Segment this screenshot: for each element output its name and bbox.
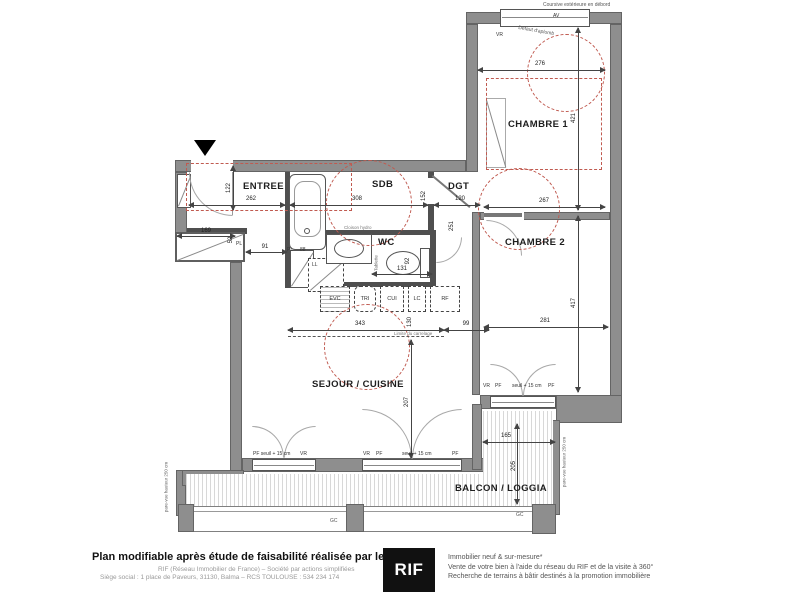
dim-281: 281 <box>540 318 550 324</box>
note-limite-carrelage: Limite du carrelage <box>394 331 432 336</box>
appliance-rf-label: RF <box>441 296 448 302</box>
window-av-chambre1 <box>500 9 590 27</box>
footer-line1: RIF (Réseau Immobilier de France) – Soci… <box>158 566 355 573</box>
wall-chambre2-left <box>472 212 480 395</box>
room-label-sdb: SDB <box>372 179 393 190</box>
note-tablette: Tablette <box>374 255 379 271</box>
dimline-131 <box>372 274 432 275</box>
footer-right-line1: Immobilier neuf & sur-mesure* <box>448 553 653 563</box>
floor-plan: EVC TRI CUI LC RF 276 262 308 120 169 91… <box>0 0 800 600</box>
railing-post-left <box>178 504 194 532</box>
dim-262: 262 <box>246 196 256 202</box>
bathtub-drain <box>304 228 310 234</box>
dimline-207 <box>411 340 412 458</box>
wall-balcony-right <box>552 420 560 515</box>
dim-308: 308 <box>352 196 362 202</box>
note-cloison-hydro: Cloison hydro <box>344 225 372 230</box>
wall-chambre1-left <box>466 24 478 172</box>
note-coursive: Coursive extérieure en débord <box>543 2 610 8</box>
wall-sejour-left <box>230 262 242 472</box>
dim-207: 207 <box>404 397 410 407</box>
dim-52: 52 <box>228 237 234 244</box>
dimline-91 <box>246 252 287 253</box>
wall-corner-block <box>556 395 622 423</box>
dim-417: 417 <box>571 298 577 308</box>
balcony-floor-strip <box>186 474 482 506</box>
dim-91: 91 <box>262 244 269 250</box>
dimline-99 <box>444 330 489 331</box>
room-label-entree: ENTREE <box>243 181 284 192</box>
dim-pl-88: PL <box>287 247 293 253</box>
appliance-evc: EVC <box>320 286 350 312</box>
room-label-dgt: DGT <box>448 181 469 192</box>
tile-limit-line <box>288 336 444 337</box>
dim-92: 92 <box>405 258 411 265</box>
dim-251: 251 <box>449 221 455 231</box>
note-parevue-left: pare-vue hauteur 250 cm <box>164 462 169 512</box>
win1-vr: VR <box>300 451 307 457</box>
balcony-door-arc-right <box>523 364 556 396</box>
footer-line2: Siège social : 1 place de Paveurs, 31130… <box>100 574 339 581</box>
balc-vr: VR <box>483 383 490 389</box>
railing-gc-right: GC <box>516 512 524 518</box>
appliance-rf: RF <box>430 286 460 312</box>
footer-right-line2: Vente de votre bien à l'aide du réseau d… <box>448 563 653 573</box>
win2-pf-b: PF <box>452 451 458 457</box>
entrance-arrow-icon <box>194 140 216 156</box>
appliance-cui-label: CUI <box>387 296 396 302</box>
note-parevue-right: pare-vue hauteur 250 cm <box>562 437 567 487</box>
access-circle-chambre1 <box>527 34 605 112</box>
dim-421: 421 <box>571 113 577 123</box>
window-sejour-2 <box>362 459 462 471</box>
dimline-267 <box>484 207 605 208</box>
wall-right <box>610 24 622 404</box>
rif-logo-text: RIF <box>395 560 424 580</box>
window-balcony-door <box>490 396 556 408</box>
railing-post-mid <box>346 504 364 532</box>
dim-pl-entree: PL <box>236 241 242 247</box>
appliance-lc: LC <box>408 286 426 312</box>
dim-267: 267 <box>539 198 549 204</box>
room-label-sejour: SEJOUR / CUISINE <box>312 379 404 390</box>
appliance-lc-label: LC <box>413 296 420 302</box>
dimline-276 <box>478 70 605 71</box>
railing-line <box>186 511 552 512</box>
wall-balcony-link <box>472 404 482 470</box>
appliance-ll-label: LL <box>312 262 318 268</box>
dim-122: 122 <box>226 183 232 193</box>
dim-131: 131 <box>397 266 407 272</box>
room-label-wc: WC <box>378 237 395 248</box>
win2-pf-a: PF <box>376 451 382 457</box>
railing-gc-left: GC <box>330 518 338 524</box>
dimline-169 <box>177 236 235 237</box>
room-label-chambre2: CHAMBRE 2 <box>505 237 565 248</box>
room-label-chambre1: CHAMBRE 1 <box>508 119 568 130</box>
balc-seuil: seuil + 15 cm <box>512 383 542 389</box>
room-label-balcon: BALCON / LOGGIA <box>455 483 547 494</box>
dimline-262 <box>189 205 285 206</box>
access-circle-sejour <box>324 304 410 390</box>
footer-right-block: Immobilier neuf & sur-mesure* Vente de v… <box>448 553 653 582</box>
dim-165: 165 <box>501 433 511 439</box>
dim-205: 205 <box>511 461 517 471</box>
opening-sdb-door <box>428 178 434 204</box>
win2-seuil: seuil + 15 cm <box>402 451 432 457</box>
wc-door-arc <box>436 237 462 263</box>
window-sejour-1 <box>252 459 316 471</box>
dim-120: 120 <box>455 196 465 202</box>
dimline-421 <box>578 28 579 210</box>
dimline-417 <box>578 216 579 392</box>
appliance-evc-label: EVC <box>329 296 340 302</box>
dim-343: 343 <box>355 321 365 327</box>
note-vr-chambre1: VR <box>496 32 503 38</box>
dimline-165 <box>483 442 555 443</box>
dim-130: 130 <box>407 317 413 327</box>
footer-right-line3: Recherche de terrains à bâtir destinés à… <box>448 572 653 582</box>
balc-pf-b: PF <box>548 383 554 389</box>
balc-pf-a: PF <box>495 383 501 389</box>
dimline-281 <box>484 327 608 328</box>
win1-pf-seuil: PF seuil + 15 cm <box>253 451 290 457</box>
dim-88: 88 <box>300 247 306 253</box>
balcony-railing <box>182 506 556 532</box>
dim-99: 99 <box>463 321 470 327</box>
dimline-120 <box>434 205 480 206</box>
window-av-label: AV <box>553 13 559 19</box>
appliance-tri-label: TRI <box>361 296 370 302</box>
dimline-308 <box>290 205 428 206</box>
dimline-122 <box>233 166 234 210</box>
rif-logo: RIF <box>383 548 435 592</box>
dim-169: 169 <box>201 228 211 234</box>
railing-post-right <box>532 504 556 534</box>
access-circle-sdb <box>326 160 412 246</box>
balcony-door-arc-left <box>490 364 523 396</box>
win2-vr: VR <box>363 451 370 457</box>
dim-276: 276 <box>535 61 545 67</box>
dim-152: 152 <box>421 191 427 201</box>
footer-title: Plan modifiable après étude de faisabili… <box>92 551 405 563</box>
